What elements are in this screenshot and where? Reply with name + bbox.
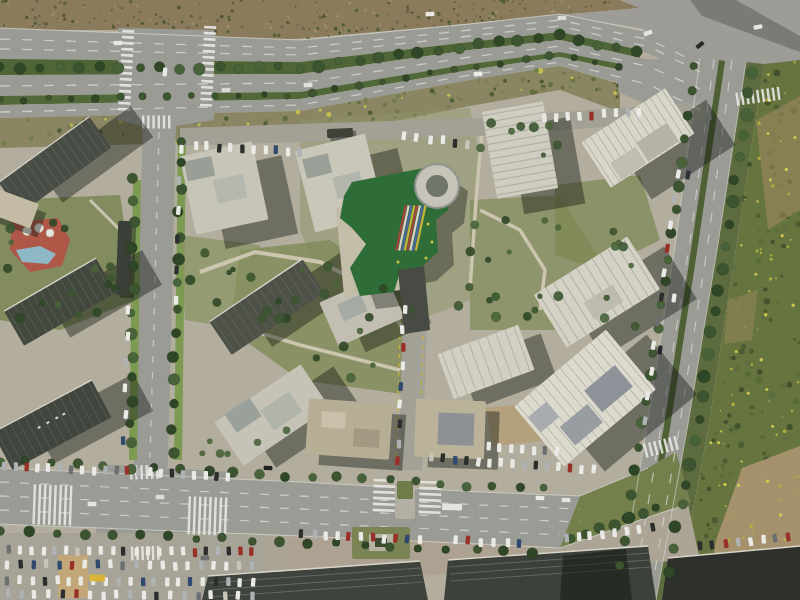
aerial-photo[interactable] [0,0,800,600]
playground-tent-3 [46,229,54,237]
car-tee [162,67,167,76]
bus-south-road [442,503,462,510]
car-south-1 [536,496,545,501]
kg-mark-2 [431,241,434,244]
commercial-beige-w [304,398,406,471]
refuge-island-hedge [397,481,413,499]
kg-mark-3 [425,257,428,260]
kindergarten-rotunda-court [426,175,448,197]
car-blvd-1 [425,12,434,17]
car-south-5 [562,498,571,503]
screenshot-root [0,0,800,600]
car-south-4 [156,495,165,499]
car-blvd-6 [221,88,230,93]
car-blvd-8 [473,72,482,77]
car-blvd-2 [557,16,566,21]
kg-mark-1 [427,223,430,226]
commercial-beige-e-rooftop-unit [437,413,474,446]
kg-mark-4 [397,261,400,264]
bus-yellow-lot [89,574,105,582]
car-south-2 [264,466,273,471]
mall-shadow-section [560,549,632,600]
car-south-3 [88,502,97,506]
car-plaza-lone [201,556,210,560]
car-blvd-5 [114,41,123,46]
car-blvd-7 [303,83,312,88]
commercial-beige-w-rooftop-unit [321,411,346,429]
commercial-beige-w-rooftop-unit [353,428,380,448]
